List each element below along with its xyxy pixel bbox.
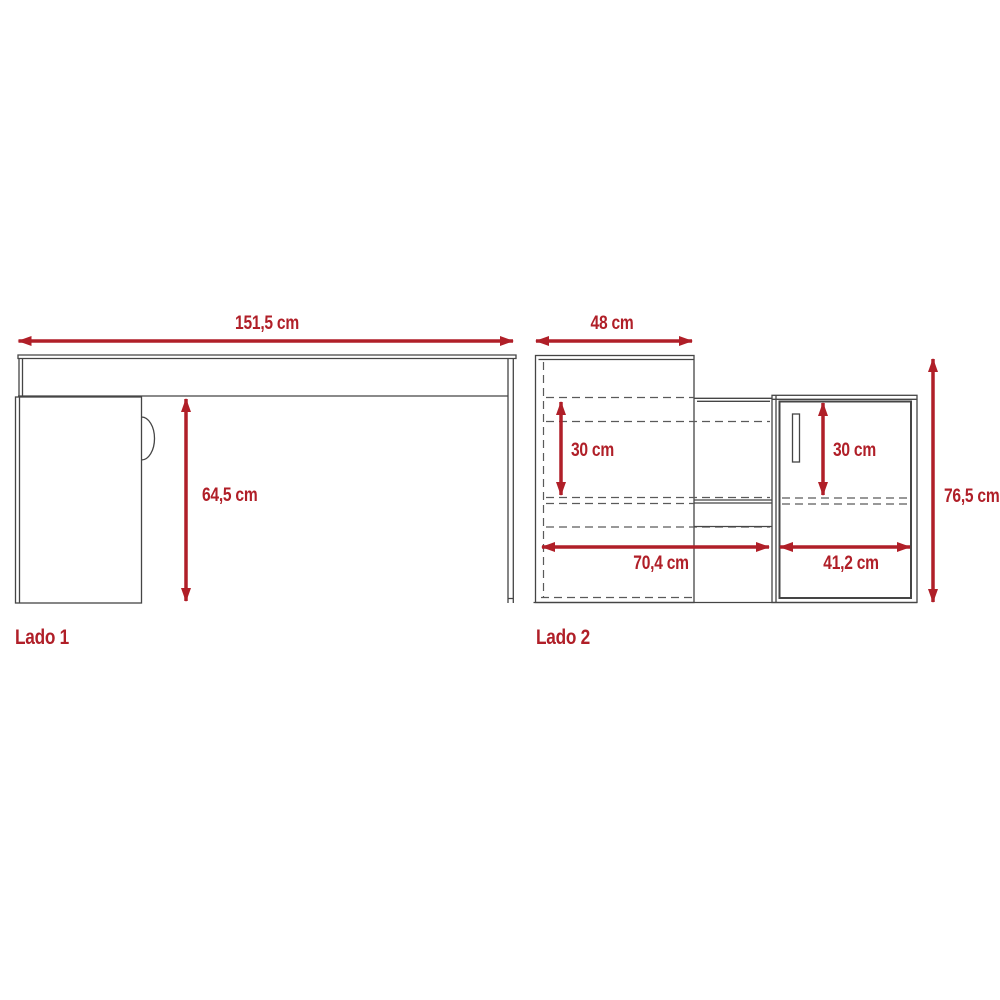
dim-label-lado1-width: 151,5 cm bbox=[185, 314, 349, 333]
dim-label-lado2-depth: 48 cm bbox=[530, 314, 694, 333]
furniture-line-drawing bbox=[0, 0, 1000, 1000]
low-cabinet-hidden-lines bbox=[782, 498, 909, 504]
desk-back-left-edge bbox=[19, 359, 23, 397]
lado1-view-label: Lado 1 bbox=[15, 627, 69, 648]
dim-label-lado2-left-shelf: 30 cm bbox=[571, 441, 614, 460]
dim-label-lado1-height: 64,5 cm bbox=[202, 486, 257, 505]
desk-right-leg bbox=[508, 359, 513, 604]
cabinet-door-handle-curve bbox=[142, 417, 155, 460]
cabinet-body bbox=[16, 397, 142, 603]
low-cabinet-door-handle bbox=[793, 414, 800, 462]
desk-top-panel bbox=[18, 355, 516, 359]
blueprint-canvas: 151,5 cm 64,5 cm 48 cm 30 cm 30 cm 70,4 … bbox=[0, 0, 1000, 1000]
dim-label-lado2-left-width: 70,4 cm bbox=[579, 554, 743, 573]
dim-label-lado2-right-width: 41,2 cm bbox=[769, 554, 933, 573]
lado1-dimensions bbox=[19, 341, 514, 601]
dim-label-lado2-height: 76,5 cm bbox=[944, 487, 999, 506]
mid-section-shelf-lines bbox=[694, 398, 772, 526]
lado1-drawing bbox=[16, 355, 517, 603]
dim-label-lado2-right-shelf: 30 cm bbox=[833, 441, 876, 460]
lado2-view-label: Lado 2 bbox=[536, 627, 590, 648]
